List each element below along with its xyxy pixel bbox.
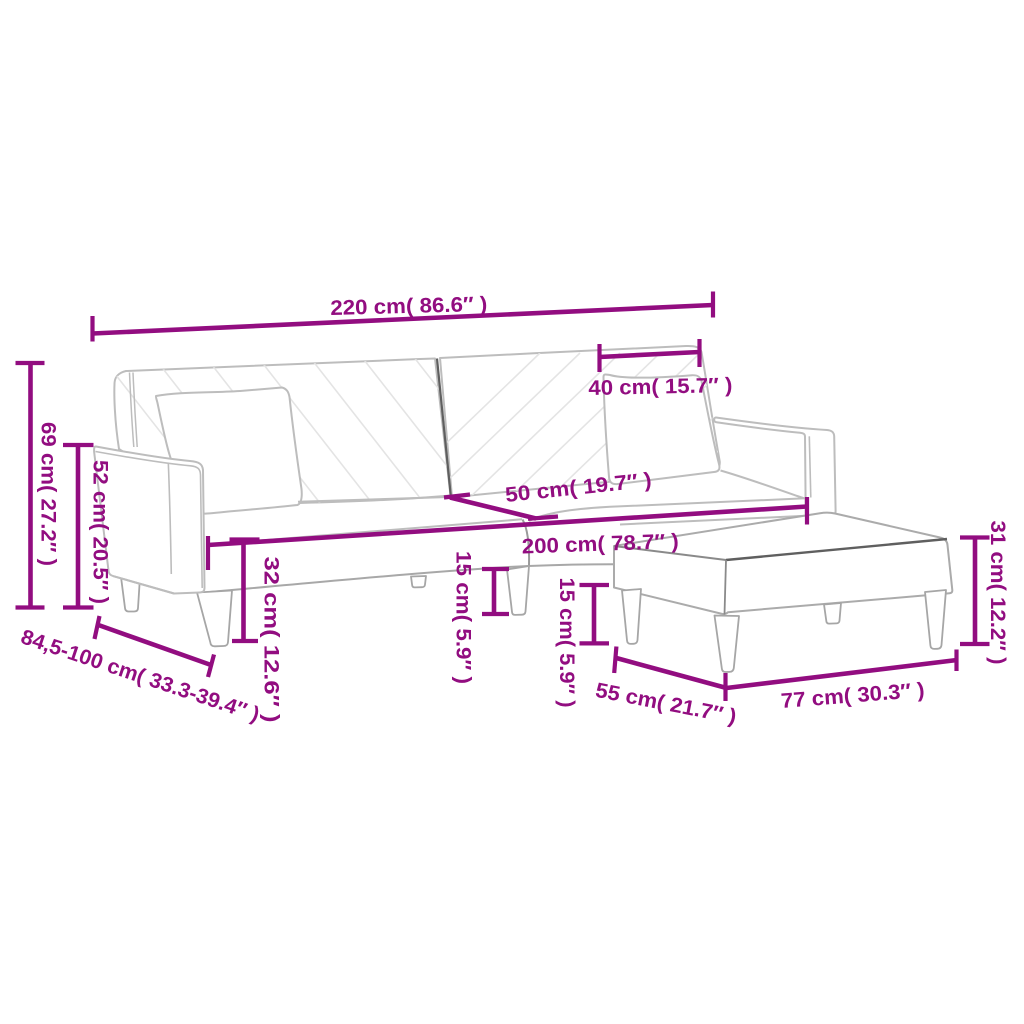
- svg-text:15 cm( 5.9″ ): 15 cm( 5.9″ ): [452, 551, 475, 684]
- svg-text:40 cm( 15.7″ ): 40 cm( 15.7″ ): [588, 374, 732, 400]
- svg-text:32 cm( 12.6″ ): 32 cm( 12.6″ ): [260, 557, 283, 723]
- svg-text:15 cm( 5.9″ ): 15 cm( 5.9″ ): [555, 578, 578, 708]
- svg-text:69 cm( 27.2″ ): 69 cm( 27.2″ ): [37, 422, 60, 566]
- svg-text:220 cm( 86.6″ ): 220 cm( 86.6″ ): [330, 293, 488, 320]
- svg-text:31 cm( 12.2″ ): 31 cm( 12.2″ ): [986, 521, 1009, 665]
- svg-text:52 cm( 20.5″ ): 52 cm( 20.5″ ): [89, 460, 112, 604]
